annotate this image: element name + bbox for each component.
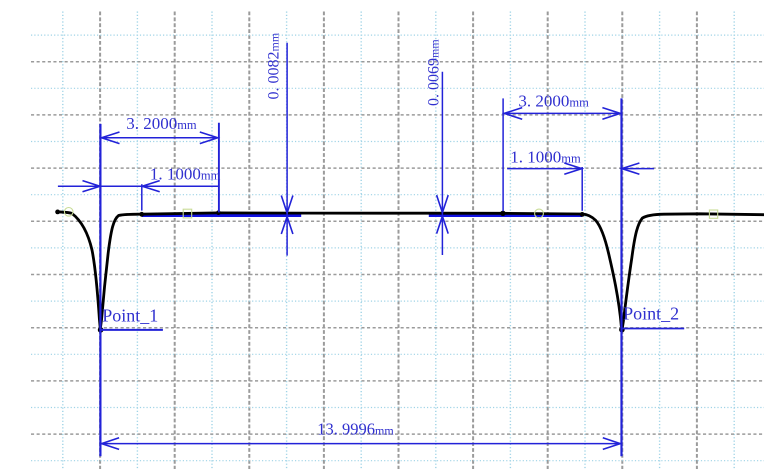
svg-text:0. 0082mm: 0. 0082mm (266, 32, 283, 99)
svg-text:0. 0069mm: 0. 0069mm (425, 39, 442, 106)
svg-text:Point_2: Point_2 (623, 304, 679, 324)
svg-text:Point_1: Point_1 (102, 305, 158, 325)
